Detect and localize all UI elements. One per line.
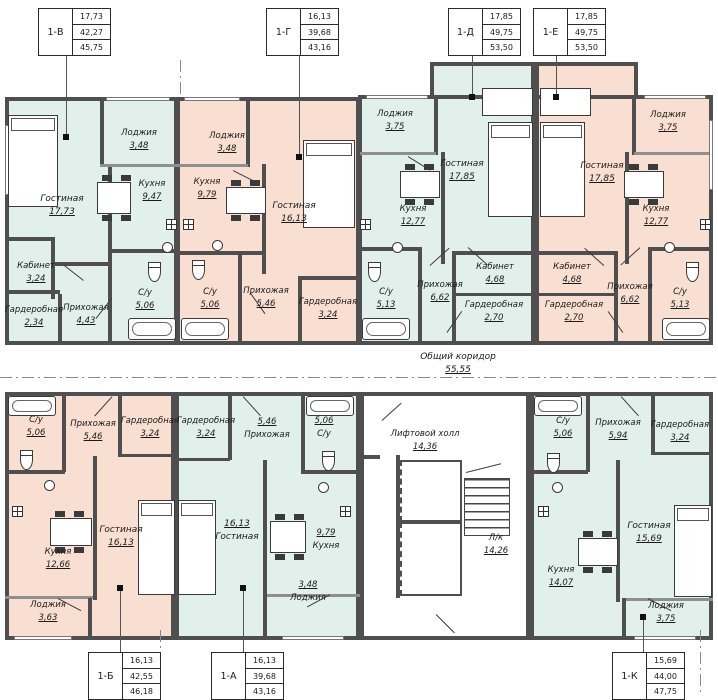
room-label-loggia-1g: Лоджия 3,48 <box>209 130 245 156</box>
apartment-id: 1-К <box>613 653 647 699</box>
wall <box>263 460 267 600</box>
apartment-id: 1-Е <box>534 9 568 55</box>
bathtub <box>128 318 176 340</box>
dining-table <box>50 518 92 546</box>
apartment-id: 1-Д <box>449 9 483 55</box>
bathtub <box>362 318 410 340</box>
window <box>184 97 240 101</box>
apartment-tag-1e: 1-Е 17,85 49,75 53,50 <box>533 8 606 56</box>
wall <box>434 95 438 155</box>
room-label-loggia-1k: Лоджия 3,75 <box>648 600 684 626</box>
room-label-wardrobe-1v: Гардеробная 2,34 <box>5 304 63 330</box>
wall <box>100 97 104 167</box>
elevator-shaft <box>400 522 462 596</box>
apartment-stat: 39,68 <box>246 669 283 685</box>
sink <box>392 242 403 253</box>
room-label-living-1b: Гостиная 16,13 <box>99 524 142 550</box>
room-label-bath-1d: С/у 5,13 <box>377 286 396 312</box>
room-label-bath-1k: С/у 5,06 <box>554 415 573 441</box>
window <box>644 95 706 99</box>
room-label-hall-1k: Прихожая 5,94 <box>595 417 641 443</box>
dining-table <box>578 538 618 566</box>
room-label-kitchen-1k: Кухня 14,07 <box>548 564 575 590</box>
vent-shaft-icon <box>538 506 549 517</box>
apartment-tag-1b: 1-Б 16,13 42,55 46,18 <box>88 652 161 700</box>
sink <box>212 240 223 251</box>
apartment-stat: 45,75 <box>73 40 110 55</box>
wall <box>178 251 264 255</box>
leader-line <box>643 620 644 652</box>
apartment-stat: 53,50 <box>568 40 605 55</box>
window <box>106 97 170 101</box>
window <box>282 636 344 640</box>
leader-line <box>120 590 121 652</box>
wall <box>246 97 250 167</box>
room-label-living-1v: Гостиная 17,73 <box>40 193 83 219</box>
wall <box>88 598 92 640</box>
sink <box>664 242 675 253</box>
bathtub <box>662 318 710 340</box>
loggia-sill <box>360 152 436 155</box>
room-label-hall-1d: Прихожая 6,62 <box>417 279 463 305</box>
sink <box>162 242 173 253</box>
room-label-loggia-1a: Лоджия 3,48 <box>290 579 326 605</box>
room-label-hall-1a: Прихожая 5,46 <box>244 416 290 442</box>
vent-shaft-icon <box>700 219 711 230</box>
apartment-stat: 17,73 <box>73 9 110 25</box>
wall <box>622 598 626 640</box>
vent-shaft-icon <box>183 219 194 230</box>
wall <box>262 164 266 274</box>
room-label-living-1a: Гостиная 16,13 <box>215 518 258 544</box>
apartment-id: 1-А <box>212 653 246 699</box>
apartment-stat: 43,16 <box>246 684 283 699</box>
room-label-kitchen-1g: Кухня 9,79 <box>194 176 221 202</box>
wall <box>535 251 618 255</box>
wall <box>360 247 420 251</box>
dining-table <box>97 182 131 214</box>
wall <box>301 392 305 472</box>
apartment-stat: 53,50 <box>483 40 520 55</box>
wall <box>238 255 242 345</box>
axis-line <box>180 60 181 96</box>
axis-line <box>0 377 718 378</box>
room-label-hall-1b: Прихожая 5,46 <box>70 418 116 444</box>
wall <box>93 456 97 600</box>
bed <box>488 122 533 217</box>
apartment-stat: 39,68 <box>301 25 338 41</box>
wall <box>452 251 535 255</box>
wardrobe-unit <box>540 88 591 116</box>
bed <box>138 500 175 595</box>
stairs <box>464 478 510 536</box>
sink <box>552 482 563 493</box>
bed <box>540 122 585 217</box>
apartment-id: 1-Б <box>89 653 123 699</box>
wall <box>360 455 380 459</box>
wall <box>5 290 60 294</box>
room-label-kitchen-1b: Кухня 12,66 <box>45 546 72 572</box>
vent-shaft-icon <box>360 219 371 230</box>
apartment-stat: 44,00 <box>647 669 684 685</box>
room-label-cabinet-1d: Кабинет 4,68 <box>476 261 514 287</box>
room-label-living-1e: Гостиная 17,85 <box>580 160 623 186</box>
apartment-stat: 49,75 <box>568 25 605 41</box>
apartment-tag-1k: 1-К 15,69 44,00 47,75 <box>612 652 685 700</box>
apartment-tag-1g: 1-Г 16,13 39,68 43,16 <box>266 8 339 56</box>
loggia-sill <box>178 164 248 167</box>
window <box>14 636 72 640</box>
bed <box>674 505 712 597</box>
dining-table <box>624 171 664 198</box>
leader-line <box>472 54 473 96</box>
room-label-bath-1b: С/у 5,06 <box>27 414 46 440</box>
wall <box>651 452 713 455</box>
dining-table <box>226 187 266 214</box>
room-label-wardrobe-1k: Гардеробная 3,24 <box>651 419 709 445</box>
room-label-wardrobe-1a: Гардеробная 3,24 <box>177 415 235 441</box>
wall <box>5 470 65 474</box>
apartment-stat: 16,13 <box>246 653 283 669</box>
apartment-stat: 42,27 <box>73 25 110 41</box>
vent-shaft-icon <box>12 506 23 517</box>
leader-dot <box>296 154 302 160</box>
wall <box>62 392 66 472</box>
apartment-tag-1v: 1-В 17,73 42,27 45,75 <box>38 8 111 56</box>
wall <box>650 247 712 251</box>
room-label-hall-1v: Прихожая 4,43 <box>63 302 109 328</box>
window <box>366 95 428 99</box>
room-label-kitchen-1d: Кухня 12,77 <box>400 203 427 229</box>
bathtub <box>534 396 582 416</box>
room-label-living-1k: Гостиная 15,69 <box>627 520 670 546</box>
room-label-hall-1g: Прихожая 5,46 <box>243 285 289 311</box>
bathtub <box>8 396 56 416</box>
room-label-living-1d: Гостиная 17,85 <box>440 158 483 184</box>
wall <box>5 237 55 241</box>
room-label-wardrobe-1b: Гардеробная 3,24 <box>121 415 179 441</box>
leader-line <box>66 54 67 136</box>
wall <box>118 454 175 457</box>
stairwell-label: Л/к 14,26 <box>484 532 508 558</box>
room-label-loggia-1v: Лоджия 3,48 <box>121 127 157 153</box>
room-label-loggia-1b: Лоджия 3,63 <box>30 599 66 625</box>
loggia-sill <box>634 152 710 155</box>
room-label-wardrobe-1d: Гардеробная 2,70 <box>465 299 523 325</box>
leader-dot <box>240 585 246 591</box>
wall <box>263 594 267 640</box>
axis-line <box>700 630 701 696</box>
corridor-label: Общий коридор 55,55 <box>420 351 496 377</box>
leader-dot <box>469 94 475 100</box>
leader-line <box>299 54 300 156</box>
room-label-loggia-1e: Лоджия 3,75 <box>650 109 686 135</box>
apartment-id: 1-В <box>39 9 73 55</box>
wardrobe-unit <box>482 88 533 116</box>
room-label-cabinet-1v: Кабинет 3,24 <box>17 260 55 286</box>
room-label-cabinet-1e: Кабинет 4,68 <box>553 261 591 287</box>
leader-dot <box>117 585 123 591</box>
wall <box>632 95 636 155</box>
room-label-loggia-1d: Лоджия 3,75 <box>377 108 413 134</box>
apartment-stat: 49,75 <box>483 25 520 41</box>
wall <box>51 262 111 266</box>
apartment-stat: 16,13 <box>301 9 338 25</box>
room-label-wardrobe-1e: Гардеробная 2,70 <box>545 299 603 325</box>
dining-table <box>270 521 306 553</box>
room-label-bath-1a: С/у 5,06 <box>315 415 334 441</box>
apartment-stat: 17,85 <box>568 9 605 25</box>
floor-plan: 1-В 17,73 42,27 45,75 1-Г 16,13 39,68 43… <box>0 0 718 700</box>
window <box>709 120 713 190</box>
leader-dot <box>640 614 646 620</box>
bathtub <box>306 396 354 416</box>
vent-shaft-icon <box>340 506 351 517</box>
apartment-stat: 43,16 <box>301 40 338 55</box>
room-label-kitchen-1v: Кухня 9,47 <box>139 178 166 204</box>
wall <box>298 276 360 280</box>
leader-dot <box>553 94 559 100</box>
leader-line <box>556 54 557 96</box>
apartment-stat: 42,55 <box>123 669 160 685</box>
elevator-shaft <box>400 460 462 522</box>
room-label-bath-1v: С/у 5,06 <box>136 287 155 313</box>
sink <box>318 482 329 493</box>
elevator-hall-label: Лифтовой холл 14,36 <box>391 428 460 454</box>
apartment-tag-1d: 1-Д 17,85 49,75 53,50 <box>448 8 521 56</box>
room-label-kitchen-1e: Кухня 12,77 <box>643 203 670 229</box>
wall <box>616 460 620 602</box>
wall <box>586 392 590 472</box>
wall <box>452 293 535 296</box>
dining-table <box>400 171 440 198</box>
wall <box>530 470 588 474</box>
leader-dot <box>63 134 69 140</box>
bathtub <box>181 318 229 340</box>
wall <box>533 62 538 345</box>
room-label-bath-1g: С/у 5,06 <box>201 286 220 312</box>
sink <box>44 480 55 491</box>
room-label-living-1g: Гостиная 16,13 <box>272 200 315 226</box>
bed <box>178 500 216 595</box>
apartment-stat: 17,85 <box>483 9 520 25</box>
leader-line <box>243 590 244 652</box>
apartment-stat: 15,69 <box>647 653 684 669</box>
wall <box>535 293 618 296</box>
room-label-wardrobe-1g: Гардеробная 3,24 <box>299 296 357 322</box>
apartment-stat: 16,13 <box>123 653 160 669</box>
wall <box>175 458 230 461</box>
apartment-id: 1-Г <box>267 9 301 55</box>
room-label-kitchen-1a: Кухня 9,79 <box>313 527 340 553</box>
vent-shaft-icon <box>166 219 177 230</box>
wall <box>301 470 360 474</box>
apartment-stat: 47,75 <box>647 684 684 699</box>
apartment-tag-1a: 1-А 16,13 39,68 43,16 <box>211 652 284 700</box>
room-label-bath-1e: С/у 5,13 <box>671 286 690 312</box>
apartment-stat: 46,18 <box>123 684 160 699</box>
room-label-hall-1e: Прихожая 6,62 <box>607 281 653 307</box>
